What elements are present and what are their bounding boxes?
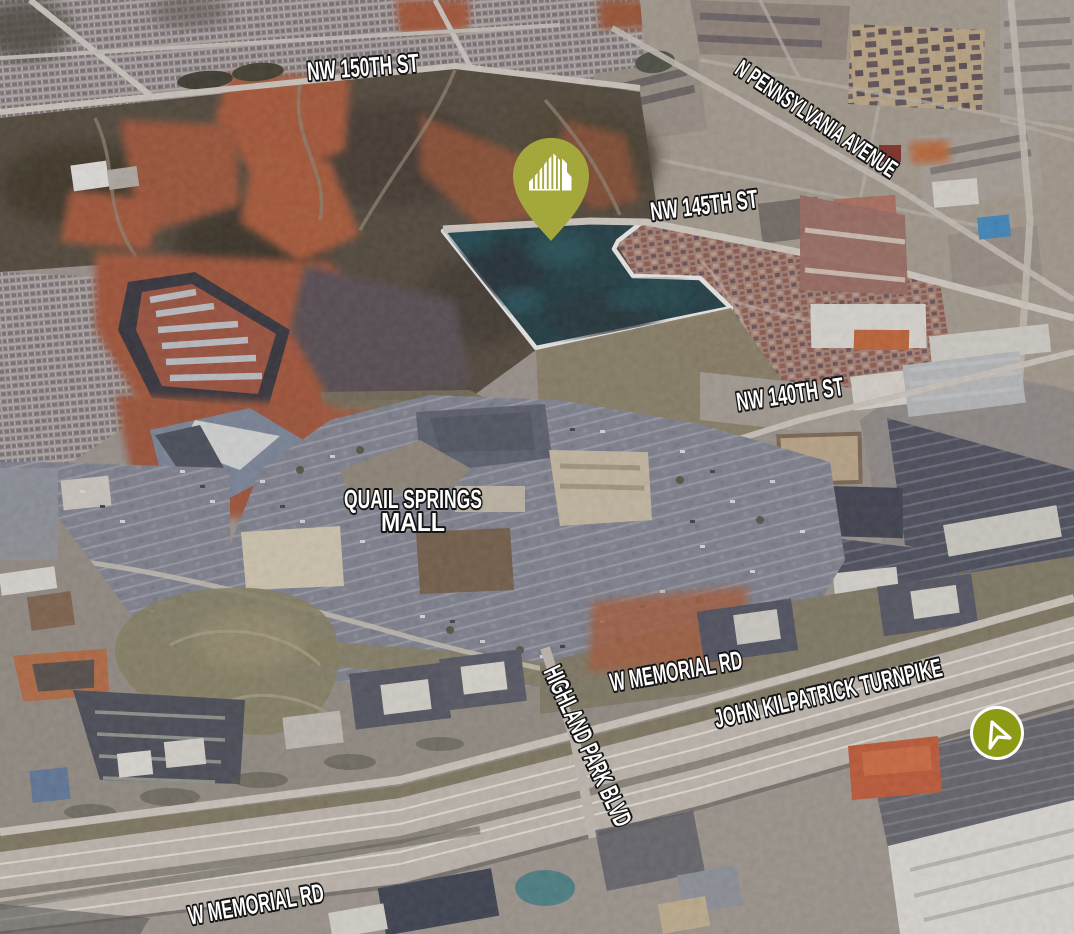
svg-text:MALL: MALL (381, 507, 445, 537)
